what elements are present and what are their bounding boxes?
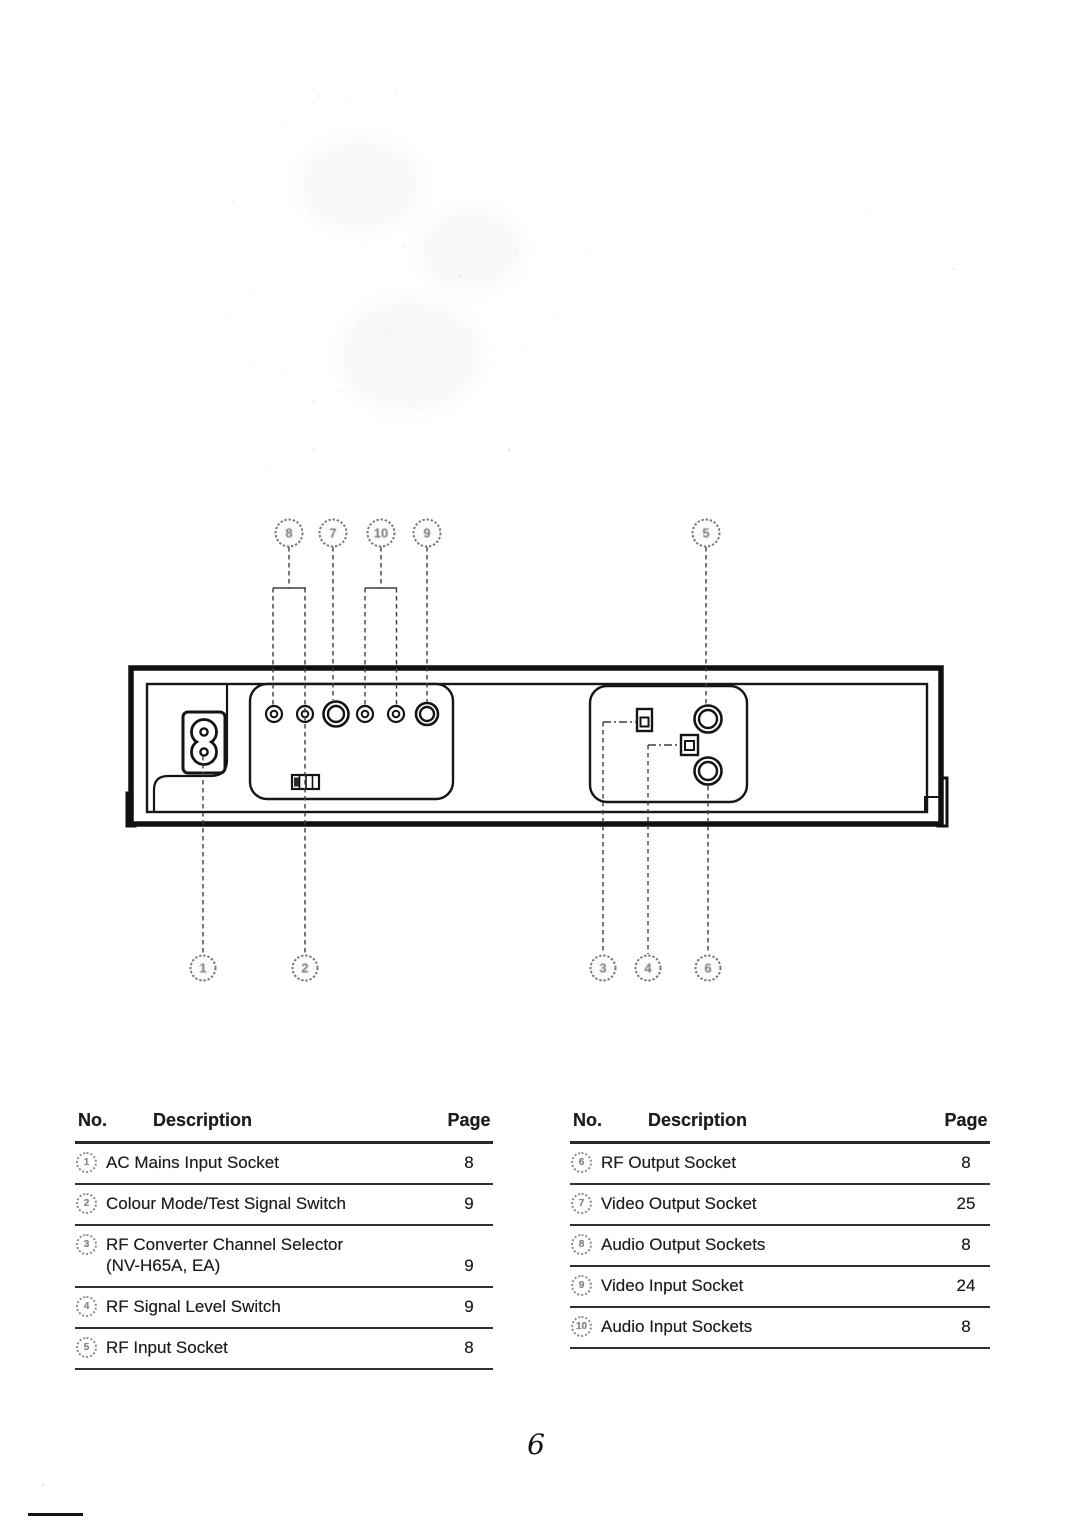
row-description-line1: RF Converter Channel Selector [106, 1234, 343, 1255]
audio-output-socket-l [266, 706, 282, 722]
scan-smudge [300, 140, 420, 230]
row-page: 24 [944, 1276, 988, 1296]
table-row: 10 Audio Input Sockets 8 [570, 1308, 990, 1349]
column-header-description: Description [153, 1110, 252, 1131]
column-header-page: Page [447, 1110, 491, 1131]
row-description: Video Output Socket [601, 1193, 757, 1214]
scan-noise-speckles [0, 0, 2, 2]
callout-badge-4: 4 [636, 956, 661, 981]
row-number-badge: 8 [571, 1234, 592, 1255]
row-number-badge: 3 [76, 1234, 97, 1255]
row-page: 9 [447, 1194, 491, 1214]
column-header-description: Description [648, 1110, 747, 1131]
row-number-badge: 9 [571, 1275, 592, 1296]
rf-socket-panel [590, 686, 747, 802]
column-header-no: No. [573, 1110, 602, 1131]
table-row: 8 Audio Output Sockets 8 [570, 1226, 990, 1267]
svg-text:6: 6 [704, 961, 711, 976]
table-row: 2 Colour Mode/Test Signal Switch 9 [75, 1185, 493, 1226]
callout-badge-9: 9 [414, 520, 441, 547]
callout-badge-1: 1 [191, 956, 216, 981]
row-page: 9 [447, 1256, 491, 1276]
table-row: 1 AC Mains Input Socket 8 [75, 1144, 493, 1185]
audio-input-socket-l [357, 706, 373, 722]
row-number-badge: 7 [571, 1193, 592, 1214]
table-row: 3 RF Converter Channel Selector (NV-H65A… [75, 1226, 493, 1288]
callout-badge-10: 10 [368, 520, 395, 547]
column-header-no: No. [78, 1110, 107, 1131]
page-number: 6 [506, 1428, 566, 1461]
row-page: 8 [944, 1235, 988, 1255]
callout-badge-8: 8 [276, 520, 303, 547]
row-page: 8 [447, 1153, 491, 1173]
table-row: 7 Video Output Socket 25 [570, 1185, 990, 1226]
table-row: 9 Video Input Socket 24 [570, 1267, 990, 1308]
table-header: No. Description Page [75, 1106, 493, 1144]
row-page: 9 [447, 1297, 491, 1317]
row-description: RF Output Socket [601, 1152, 736, 1173]
row-number-badge: 4 [76, 1296, 97, 1317]
row-description: Audio Output Sockets [601, 1234, 765, 1255]
row-description: Audio Input Sockets [601, 1316, 752, 1337]
callout-badge-3: 3 [591, 956, 616, 981]
callout-badge-7: 7 [320, 520, 347, 547]
row-description: Colour Mode/Test Signal Switch [106, 1193, 346, 1214]
row-description: AC Mains Input Socket [106, 1152, 279, 1173]
svg-text:9: 9 [423, 526, 430, 541]
row-page: 8 [447, 1338, 491, 1358]
row-description: Video Input Socket [601, 1275, 743, 1296]
table-header: No. Description Page [570, 1106, 990, 1144]
svg-text:1: 1 [199, 961, 206, 976]
svg-text:2: 2 [301, 961, 308, 976]
svg-text:8: 8 [285, 526, 292, 541]
row-number-badge: 6 [571, 1152, 592, 1173]
svg-text:4: 4 [644, 961, 652, 976]
ac-pin-hole [200, 728, 207, 735]
table-row: 4 RF Signal Level Switch 9 [75, 1288, 493, 1329]
svg-text:10: 10 [374, 526, 388, 541]
row-page: 8 [944, 1153, 988, 1173]
row-description-line2: (NV-H65A, EA) [106, 1255, 343, 1276]
av-socket-panel [250, 684, 453, 799]
svg-text:5: 5 [702, 526, 709, 541]
row-number-badge: 10 [571, 1316, 592, 1337]
table-row: 6 RF Output Socket 8 [570, 1144, 990, 1185]
row-description: RF Signal Level Switch [106, 1296, 281, 1317]
callout-badge-6: 6 [696, 956, 721, 981]
row-description: RF Input Socket [106, 1337, 228, 1358]
row-number-badge: 1 [76, 1152, 97, 1173]
rear-panel-diagram: 8 7 10 9 5 1 2 3 4 6 [0, 500, 1080, 990]
svg-text:7: 7 [329, 526, 336, 541]
legend-table-right: No. Description Page 6 RF Output Socket … [570, 1106, 990, 1349]
rf-signal-level-switch [681, 735, 698, 755]
row-page: 25 [944, 1194, 988, 1214]
corner-registration-mark [28, 1513, 83, 1516]
row-description: RF Converter Channel Selector (NV-H65A, … [106, 1234, 343, 1276]
row-number-badge: 2 [76, 1193, 97, 1214]
ac-mains-input-socket [183, 712, 225, 773]
audio-input-socket-r [388, 706, 404, 722]
row-number-badge: 5 [76, 1337, 97, 1358]
ac-pin-hole [200, 748, 207, 755]
row-page: 8 [944, 1317, 988, 1337]
rf-converter-channel-selector-switch [637, 709, 652, 731]
table-row: 5 RF Input Socket 8 [75, 1329, 493, 1370]
scan-smudge [420, 210, 520, 290]
scan-smudge [340, 300, 480, 410]
legend-table-left: No. Description Page 1 AC Mains Input So… [75, 1106, 493, 1370]
svg-text:3: 3 [599, 961, 606, 976]
callout-badge-2: 2 [293, 956, 318, 981]
callout-badge-5: 5 [693, 520, 720, 547]
column-header-page: Page [944, 1110, 988, 1131]
